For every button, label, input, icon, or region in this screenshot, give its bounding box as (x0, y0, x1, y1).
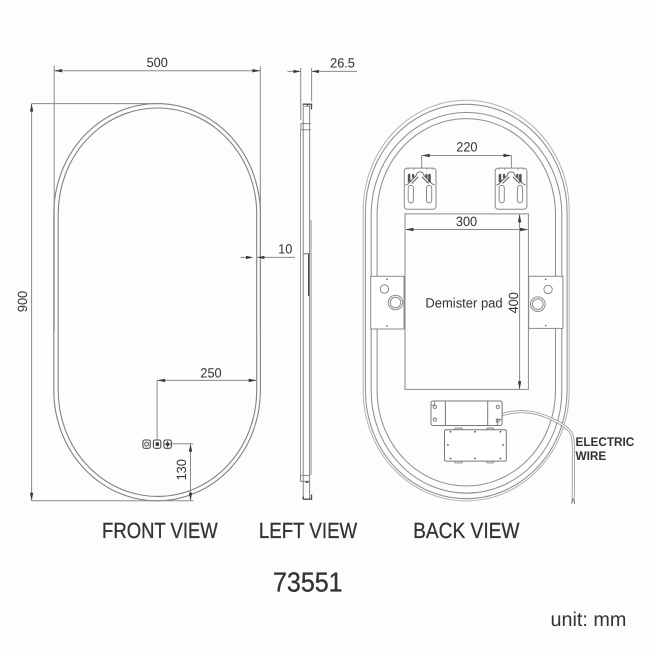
svg-text:unit: mm: unit: mm (551, 609, 627, 631)
svg-text:LEFT VIEW: LEFT VIEW (259, 518, 358, 543)
svg-text:300: 300 (456, 214, 477, 229)
svg-text:220: 220 (456, 139, 477, 154)
svg-text:10: 10 (278, 241, 292, 256)
svg-text:FRONT VIEW: FRONT VIEW (102, 518, 218, 543)
svg-text:400: 400 (506, 292, 521, 313)
svg-text:250: 250 (200, 365, 221, 380)
svg-text:900: 900 (15, 291, 30, 312)
svg-text:WIRE: WIRE (576, 449, 607, 463)
svg-text:ELECTRIC: ELECTRIC (576, 435, 635, 449)
svg-text:Demister pad: Demister pad (425, 296, 502, 311)
svg-text:500: 500 (147, 55, 168, 70)
svg-text:26.5: 26.5 (330, 56, 355, 71)
svg-text:73551: 73551 (273, 567, 343, 598)
svg-text:130: 130 (174, 459, 189, 480)
svg-text:BACK VIEW: BACK VIEW (413, 518, 520, 543)
